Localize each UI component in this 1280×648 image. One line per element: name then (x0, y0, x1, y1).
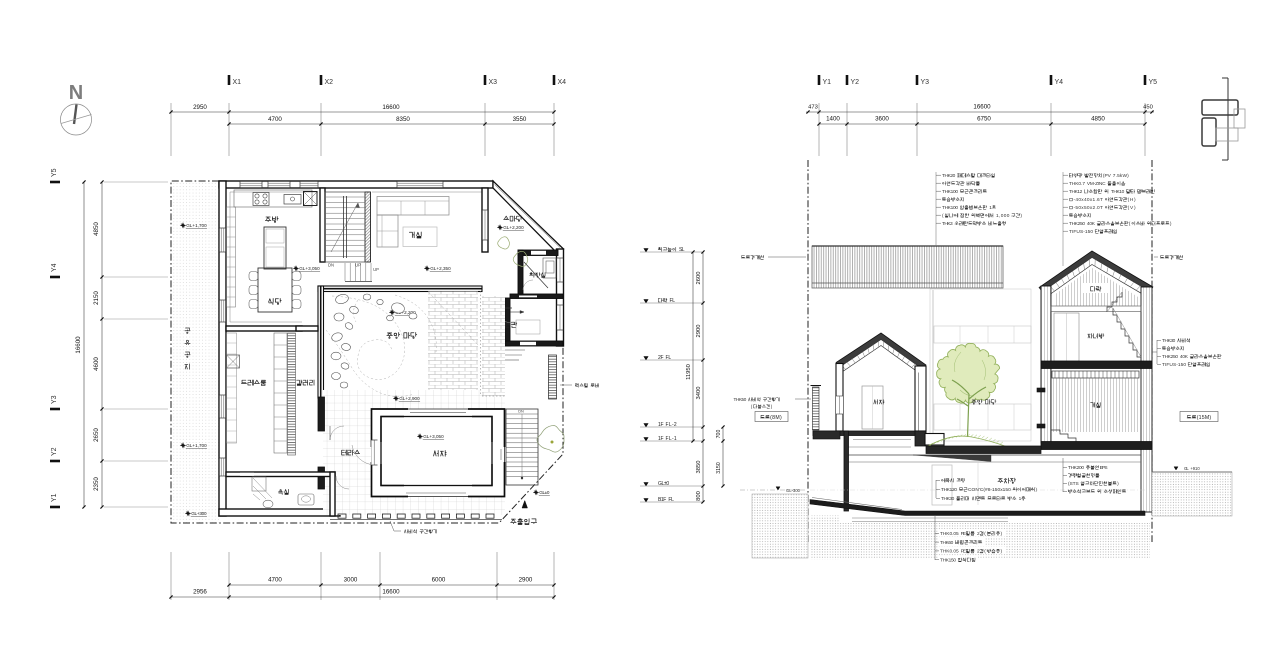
svg-text:Y4: Y4 (1055, 79, 1064, 86)
svg-text:GL+2,200: GL+2,200 (503, 225, 524, 230)
svg-text:THK100: THK100 (942, 189, 958, 195)
svg-text:THK30: THK30 (1162, 338, 1176, 344)
svg-text:473: 473 (808, 105, 818, 111)
svg-text:40K: 40K (1180, 354, 1189, 360)
svg-text:PE: PE (961, 549, 966, 555)
svg-text:3550: 3550 (513, 116, 527, 123)
svg-text:THK12: THK12 (1069, 189, 1083, 195)
svg-text:4850: 4850 (93, 222, 100, 236)
svg-text:THK60: THK60 (940, 540, 954, 546)
svg-text:GL+3,050: GL+3,050 (299, 266, 320, 271)
svg-text:Y1: Y1 (51, 493, 58, 502)
svg-text:Y3: Y3 (921, 79, 930, 86)
svg-text:2150: 2150 (93, 291, 100, 305)
svg-text:6750: 6750 (977, 116, 991, 123)
svg-text:THK3: THK3 (942, 221, 953, 227)
svg-text:X2: X2 (325, 79, 334, 86)
svg-text:2950: 2950 (193, 104, 207, 111)
svg-text:PE: PE (961, 531, 966, 537)
svg-text:2956: 2956 (193, 589, 207, 596)
svg-text:3150: 3150 (716, 462, 722, 474)
svg-text:11950: 11950 (686, 364, 692, 380)
svg-text:800: 800 (696, 491, 702, 501)
svg-text:GL+2,900: GL+2,900 (399, 396, 420, 401)
svg-text:THK10: THK10 (1111, 189, 1125, 195)
svg-text:2650: 2650 (93, 428, 100, 442)
svg-text:+910: +910 (1190, 466, 1200, 471)
svg-text:3600: 3600 (875, 116, 889, 123)
svg-text:THK150: THK150 (940, 557, 956, 563)
svg-text:X4: X4 (558, 79, 567, 86)
svg-text:Y2: Y2 (51, 447, 58, 456)
svg-text:VM-ZINC: VM-ZINC (1087, 181, 1106, 187)
svg-text:1: 1 (989, 205, 992, 211)
svg-text:GL+2,350: GL+2,350 (430, 266, 451, 271)
svg-text:UP: UP (373, 267, 379, 272)
svg-text:THK200: THK200 (1068, 465, 1084, 471)
svg-text:THK0.05: THK0.05 (940, 531, 959, 537)
svg-text:(8M): (8M) (770, 415, 782, 421)
svg-text:4600: 4600 (93, 357, 100, 371)
svg-text:THK100: THK100 (942, 205, 958, 211)
svg-text:GL+3,050: GL+3,050 (423, 434, 444, 439)
svg-text:1,000: 1,000 (996, 213, 1010, 219)
svg-text:THK0.05: THK0.05 (940, 549, 959, 555)
svg-text:450: 450 (1143, 105, 1153, 111)
svg-text:6000: 6000 (432, 577, 446, 584)
svg-text:16600: 16600 (382, 589, 400, 596)
svg-text:2900: 2900 (696, 325, 702, 338)
svg-text:-50x50x2.0T: -50x50x2.0T (1074, 205, 1103, 211)
svg-text:16600: 16600 (973, 104, 991, 111)
svg-text:2: 2 (977, 549, 980, 555)
svg-text:GL+1,700: GL+1,700 (186, 443, 207, 448)
svg-text:(15M): (15M) (1197, 415, 1212, 421)
svg-text:Y5: Y5 (1149, 79, 1158, 86)
svg-text:THK250: THK250 (1162, 354, 1178, 360)
svg-text:7.5kW): 7.5kW) (1113, 173, 1129, 179)
svg-text:16600: 16600 (382, 104, 400, 111)
svg-text:N: N (69, 82, 83, 104)
svg-text:THK20: THK20 (942, 173, 956, 179)
svg-text:(H): (H) (1128, 197, 1136, 203)
svg-text:TIFUS-150: TIFUS-150 (1162, 362, 1186, 368)
svg-text:4700: 4700 (268, 116, 282, 123)
svg-text:GL±0: GL±0 (539, 490, 550, 495)
svg-text:2900: 2900 (519, 577, 533, 584)
svg-text:THK50: THK50 (733, 397, 746, 402)
svg-text:1: 1 (1019, 496, 1022, 502)
svg-text:(STS: (STS (1068, 481, 1079, 487)
svg-text:8350: 8350 (396, 116, 410, 123)
svg-text:1400: 1400 (826, 116, 840, 123)
svg-text:EPS: EPS (1100, 465, 1108, 471)
svg-text:-40x40x1.6T: -40x40x1.6T (1074, 197, 1103, 203)
svg-text:THK30: THK30 (941, 496, 955, 502)
svg-text:THK250: THK250 (1069, 221, 1085, 227)
svg-text:2350: 2350 (93, 477, 100, 491)
svg-text:4850: 4850 (1091, 116, 1105, 123)
svg-text:GL+1,700: GL+1,700 (186, 223, 207, 228)
svg-text:GL-300: GL-300 (786, 488, 801, 493)
svg-text:THK120: THK120 (941, 487, 957, 493)
svg-text:DN: DN (328, 263, 334, 268)
svg-text:DN: DN (518, 410, 524, 414)
svg-text:2: 2 (977, 531, 980, 537)
svg-text:(PV: (PV (1103, 173, 1112, 179)
svg-text:GL+300: GL+300 (191, 511, 207, 516)
svg-text:TIFUS-150: TIFUS-150 (1069, 229, 1093, 235)
svg-text:3850: 3850 (696, 461, 702, 474)
svg-text:UP: UP (355, 263, 361, 268)
svg-text:2600: 2600 (696, 272, 702, 285)
svg-text:GL: GL (1184, 466, 1189, 471)
svg-text:THK0.7: THK0.7 (1069, 181, 1085, 187)
svg-text:X1: X1 (233, 79, 242, 86)
svg-text:Y3: Y3 (51, 395, 58, 404)
svg-text:CON'C(#8-150x150: CON'C(#8-150x150 (968, 487, 1011, 493)
svg-text:X3: X3 (489, 79, 498, 86)
svg-text:Y2: Y2 (851, 79, 860, 86)
svg-text:16600: 16600 (75, 336, 82, 354)
svg-text:3400: 3400 (696, 387, 702, 400)
svg-text:700: 700 (716, 430, 722, 439)
svg-text:4700: 4700 (268, 577, 282, 584)
svg-text:40K: 40K (1087, 221, 1096, 227)
svg-text:3000: 3000 (344, 577, 358, 584)
svg-text:(V): (V) (1128, 205, 1136, 211)
svg-text:Y5: Y5 (51, 168, 58, 177)
svg-text:Y1: Y1 (823, 79, 832, 86)
svg-text:Y4: Y4 (51, 263, 58, 272)
